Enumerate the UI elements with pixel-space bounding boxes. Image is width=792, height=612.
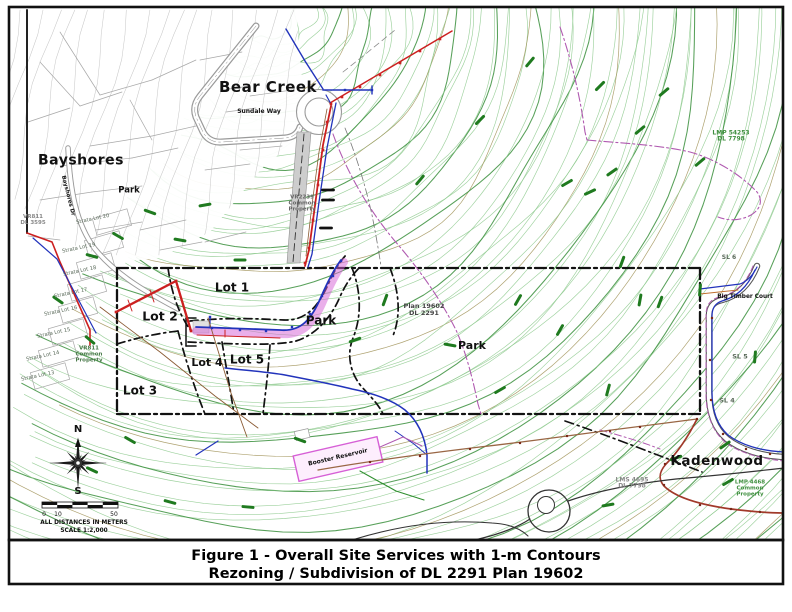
- scalebar-tick-0: 0: [42, 512, 46, 518]
- scalebar-tick-10: 10: [54, 512, 62, 518]
- parcel-label-lms4695: LMS 4695 DL 7798: [616, 478, 649, 491]
- parcel-lmpse-line3: Property: [735, 492, 765, 498]
- parcel-label-sl6: SL 6: [722, 255, 736, 261]
- compass-south-label: S: [74, 487, 81, 498]
- parcel-dl7798se-line: DL 7798: [616, 484, 649, 490]
- figure-title-line2: Rezoning / Subdivision of DL 2291 Plan 1…: [209, 566, 584, 582]
- parcel-label-vr2239: VR2239 Common Property: [288, 195, 315, 212]
- area-label-kadenwood: Kadenwood: [670, 454, 763, 468]
- parcel-dl-line: DL 2291: [404, 310, 445, 317]
- park-label-center: Park: [306, 315, 336, 328]
- parcel-label-lmp-se: LMP 4468 Common Property: [735, 480, 765, 497]
- park-label-small: Park: [118, 187, 140, 196]
- parcel-dl7798-line: DL 7798: [712, 137, 749, 143]
- parcel-label-plan19602: Plan 19602 DL 2291: [404, 303, 445, 317]
- street-label-sundale-way: Sundale Way: [237, 109, 281, 115]
- vr811-line3: Property: [75, 358, 102, 364]
- compass-north-label: N: [74, 425, 82, 436]
- vr2239-line3: Property: [288, 207, 315, 213]
- lot-label-2: Lot 2: [142, 309, 178, 322]
- scalebar-note-units: ALL DISTANCES IN METERS: [40, 520, 128, 526]
- area-label-bayshores: Bayshores: [38, 154, 124, 169]
- parcel-label-sl4: SL 4: [719, 398, 735, 405]
- parcel-label-vr811-dl3595: VR811 DL 3595: [20, 215, 45, 227]
- lot-label-3: Lot 3: [123, 385, 157, 398]
- street-label-big-timber-court: Big Timber Court: [717, 294, 773, 300]
- lot-label-1: Lot 1: [215, 282, 249, 295]
- lot-label-4: Lot 4: [191, 357, 222, 369]
- parcel-label-vr811-common: VR811 Common Property: [75, 346, 102, 363]
- figure-title-line1: Figure 1 - Overall Site Services with 1-…: [191, 548, 600, 564]
- park-label-east: Park: [458, 340, 486, 352]
- parcel-label-sl5: SL 5: [732, 354, 748, 361]
- parcel-label-lmp54253: LMP 54253 DL 7798: [712, 131, 749, 144]
- vr811b-line2: DL 3595: [20, 221, 45, 227]
- figure-page: Bear Creek Bayshores Kadenwood Park Park…: [0, 0, 792, 612]
- lot-label-5: Lot 5: [230, 354, 264, 367]
- area-label-bear-creek: Bear Creek: [219, 80, 317, 96]
- scalebar-note-scale: SCALE 1:2,000: [60, 528, 107, 534]
- scalebar-tick-50: 50: [110, 512, 118, 518]
